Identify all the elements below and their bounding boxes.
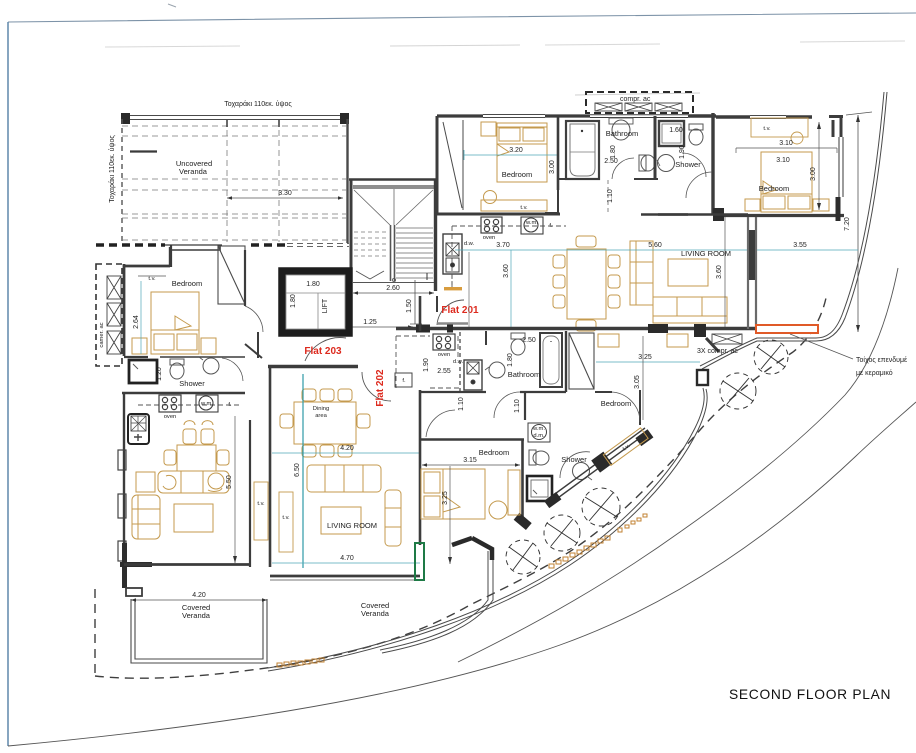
svg-text:Veranda: Veranda [179, 167, 208, 176]
svg-text:Flat 201: Flat 201 [441, 305, 479, 316]
svg-text:area: area [315, 413, 327, 419]
svg-text:Bedroom: Bedroom [601, 399, 631, 408]
svg-text:3.60: 3.60 [503, 264, 510, 278]
svg-text:Flat 202: Flat 202 [375, 369, 386, 407]
svg-text:t.v.: t.v. [282, 515, 290, 521]
svg-text:Bathroom: Bathroom [606, 129, 639, 138]
svg-text:Bedroom: Bedroom [172, 279, 202, 288]
svg-text:compr. ac: compr. ac [620, 96, 651, 103]
svg-text:7.20: 7.20 [844, 217, 851, 231]
svg-text:2.50: 2.50 [604, 158, 618, 165]
svg-text:Τοίχος επενδυμέ: Τοίχος επενδυμέ [856, 356, 907, 364]
svg-text:d.m.: d.m. [533, 433, 545, 439]
svg-text:3.25: 3.25 [442, 491, 449, 505]
svg-text:d.w.: d.w. [453, 359, 464, 365]
svg-text:LIFT: LIFT [322, 298, 329, 313]
svg-text:1.10: 1.10 [514, 399, 521, 413]
svg-text:d.w.: d.w. [464, 241, 475, 247]
svg-text:1.50: 1.50 [406, 299, 413, 313]
svg-text:Τοχαράκι 110εκ. ύψος: Τοχαράκι 110εκ. ύψος [108, 135, 116, 203]
svg-text:1.90: 1.90 [423, 358, 430, 372]
svg-text:Bedroom: Bedroom [479, 448, 509, 457]
svg-text:1.80: 1.80 [290, 294, 297, 308]
svg-text:Τοχαράκι 110εκ. ύψος: Τοχαράκι 110εκ. ύψος [224, 100, 292, 108]
svg-text:3.60: 3.60 [716, 265, 723, 279]
svg-text:t.v.: t.v. [257, 501, 265, 507]
svg-text:2.50: 2.50 [522, 337, 536, 344]
svg-text:5.60: 5.60 [648, 242, 662, 249]
svg-text:1.10: 1.10 [458, 397, 465, 411]
svg-text:w.m.: w.m. [200, 401, 213, 407]
svg-text:3.25: 3.25 [638, 354, 652, 361]
svg-text:1.90: 1.90 [679, 145, 686, 159]
svg-text:SECOND FLOOR PLAN: SECOND FLOOR PLAN [729, 687, 891, 702]
svg-text:3.05: 3.05 [634, 375, 641, 389]
svg-text:3.15: 3.15 [463, 457, 477, 464]
svg-text:4.70: 4.70 [340, 555, 354, 562]
svg-text:oven: oven [438, 352, 451, 358]
svg-text:2.60: 2.60 [386, 285, 400, 292]
svg-text:f.: f. [402, 378, 406, 384]
svg-text:4.20: 4.20 [192, 592, 206, 599]
svg-text:w.m.: w.m. [532, 426, 545, 432]
svg-text:6.50: 6.50 [294, 463, 301, 477]
svg-text:t.v.: t.v. [520, 205, 528, 211]
svg-text:oven: oven [483, 235, 496, 241]
svg-text:1.60: 1.60 [669, 127, 683, 134]
svg-text:1.25: 1.25 [363, 319, 377, 326]
svg-text:5.50: 5.50 [226, 475, 233, 489]
svg-text:3.00: 3.00 [810, 167, 817, 181]
svg-text:3.70: 3.70 [496, 242, 510, 249]
svg-text:2.55: 2.55 [437, 368, 451, 375]
svg-text:LIVING ROOM: LIVING ROOM [327, 521, 377, 530]
svg-text:w.m.: w.m. [525, 220, 538, 226]
svg-text:3.20: 3.20 [509, 147, 523, 154]
svg-text:Shower: Shower [179, 379, 205, 388]
svg-text:Bedroom: Bedroom [502, 170, 532, 179]
svg-text:Dining: Dining [313, 406, 329, 412]
svg-text:Veranda: Veranda [361, 609, 390, 618]
svg-text:1.80: 1.80 [507, 353, 514, 367]
svg-text:3X compr. ac: 3X compr. ac [697, 348, 738, 355]
svg-text:t.v.: t.v. [763, 126, 771, 132]
svg-text:με κεραμικό: με κεραμικό [856, 369, 893, 377]
svg-text:f.: f. [228, 402, 232, 408]
svg-text:t.v.: t.v. [148, 276, 156, 282]
svg-text:Veranda: Veranda [182, 611, 211, 620]
svg-text:3.10: 3.10 [776, 157, 790, 164]
svg-text:Bathroom: Bathroom [508, 370, 541, 379]
svg-text:3.55: 3.55 [793, 242, 807, 249]
svg-text:3.30: 3.30 [278, 190, 292, 197]
svg-text:oven: oven [164, 414, 177, 420]
svg-text:1.80: 1.80 [306, 281, 320, 288]
svg-text:3.10: 3.10 [779, 140, 793, 147]
svg-text:2.64: 2.64 [133, 315, 140, 329]
svg-text:1.80: 1.80 [610, 145, 617, 159]
svg-text:Flat 203: Flat 203 [304, 346, 342, 357]
svg-text:1.20: 1.20 [156, 367, 163, 381]
svg-text:3.00: 3.00 [549, 160, 556, 174]
svg-text:Shower: Shower [675, 160, 701, 169]
svg-text:Bedroom: Bedroom [759, 184, 789, 193]
svg-text:camer. ac: camer. ac [99, 322, 105, 347]
svg-text:4.20: 4.20 [340, 445, 354, 452]
svg-text:LIVING ROOM: LIVING ROOM [681, 249, 731, 258]
